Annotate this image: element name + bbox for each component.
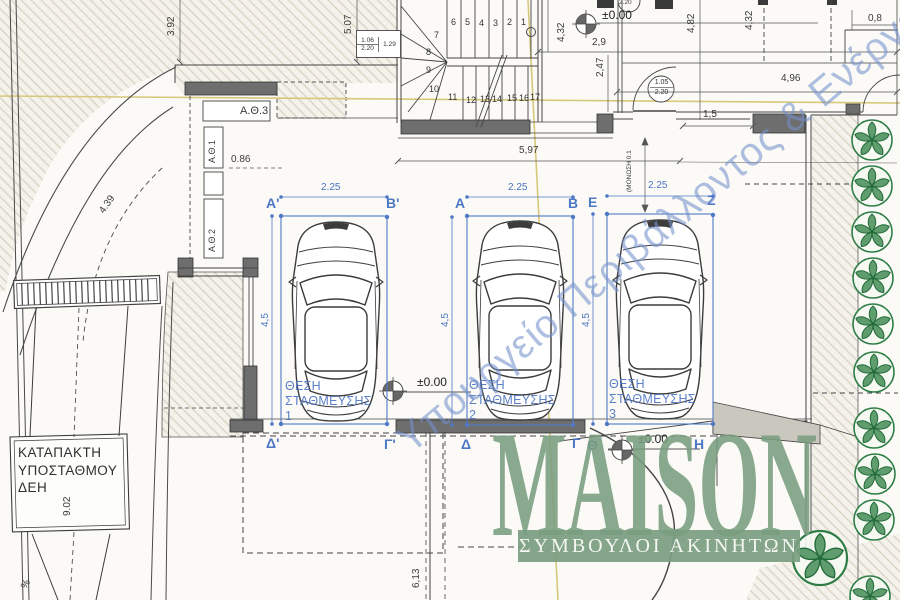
dim-4-82: 4,82 xyxy=(687,14,697,33)
dim-0-86: 0.86 xyxy=(231,155,250,165)
door-tag-main-side: 1.29 xyxy=(379,41,400,48)
door-tag-circle-top: 1.05 xyxy=(650,78,673,88)
dim-3-92: 3.92 xyxy=(167,17,177,36)
door-tag-clipped: 2.20 xyxy=(619,0,632,7)
corner-d2: Δ xyxy=(461,437,471,451)
door-tag-circle-bottom: 2.20 xyxy=(650,88,673,97)
corner-b1: Β' xyxy=(386,196,399,210)
dim-4-32-stair: 4,32 xyxy=(557,23,567,42)
corner-g1: Γ' xyxy=(384,437,396,451)
stair-step-9: 9 xyxy=(426,66,431,75)
deh-shaft-line2: ΥΠΟΣΤΑΘΜΟΥ xyxy=(18,462,117,480)
dim-1-5: 1,5 xyxy=(703,110,717,120)
stair-step-1: 1 xyxy=(521,18,526,27)
door-tag-circle: 1.05 2.20 xyxy=(650,78,673,97)
grating-strip xyxy=(14,275,161,308)
dim-2-47: 2,47 xyxy=(596,58,606,77)
parking-label-1-line1: ΘΕΣΗ xyxy=(285,379,372,394)
stair-step-13: 13 xyxy=(480,95,490,104)
dim-6-13: 6,13 xyxy=(412,569,422,588)
stair-step-6: 6 xyxy=(451,18,456,27)
dim-stall-width-1: 2.25 xyxy=(321,183,340,193)
stair-step-16: 16 xyxy=(519,94,529,103)
stair-step-4: 4 xyxy=(479,19,484,28)
door-tag-main-bottom: 2.20 xyxy=(357,45,378,52)
dim-2-9: 2,9 xyxy=(592,38,606,48)
parking-label-1-line2: ΣΤΑΘΜΕΥΣΗΣ xyxy=(285,394,372,409)
stair-step-7: 7 xyxy=(434,31,439,40)
deh-shaft-label: ΚΑΤΑΠΑΚΤΗ ΥΠΟΣΤΑΘΜΟΥ ΔΕΗ xyxy=(18,444,117,497)
door-tag-main: 1.062.20 1.29 xyxy=(356,30,401,58)
stair-step-2: 2 xyxy=(507,18,512,27)
parking-label-1: ΘΕΣΗ ΣΤΑΘΜΕΥΣΗΣ 1 xyxy=(285,379,372,423)
room-ath1: Α.Θ.1 xyxy=(208,140,217,163)
room-ath2: Α.Θ.2 xyxy=(208,229,217,252)
parking-label-3-line1: ΘΕΣΗ xyxy=(609,377,696,392)
stair-step-8: 8 xyxy=(426,48,431,57)
dim-5-97: 5,97 xyxy=(519,146,538,156)
maison-tagline: ΣΥΜΒΟΥΛΟΙ ΑΚΙΝΗΤΩΝ xyxy=(518,530,800,562)
stair-step-12: 12 xyxy=(466,96,476,105)
door-tag-main-top: 1.06 xyxy=(357,37,378,45)
dim-4-96: 4,96 xyxy=(781,74,800,84)
dim-5-07: 5.07 xyxy=(344,15,354,34)
dim-stall-width-3: 2.25 xyxy=(648,181,667,191)
corner-b2: Β xyxy=(568,196,578,210)
parking-label-1-number: 1 xyxy=(285,409,372,424)
stair-step-3: 3 xyxy=(493,19,498,28)
stair-step-5: 5 xyxy=(465,18,470,27)
corner-e3: Ε xyxy=(588,195,597,209)
corner-a1: Α' xyxy=(266,196,279,210)
dim-9-02: 9.02 xyxy=(63,497,73,516)
dim-insulation: (ΜΟΝΩΣΗ 0.1 xyxy=(627,150,634,192)
deh-shaft-line1: ΚΑΤΑΠΑΚΤΗ xyxy=(18,444,117,462)
stair-step-17: 17 xyxy=(530,93,540,102)
dim-stall-depth-2: 4,5 xyxy=(441,313,451,327)
dim-stall-width-2: 2.25 xyxy=(508,183,527,193)
level-top: ±0.00 xyxy=(602,9,632,21)
dim-stall-depth-1: 4,5 xyxy=(261,313,271,327)
room-ath3: Α.Θ.3 xyxy=(240,106,268,117)
dim-4-32-right: 4,32 xyxy=(745,11,755,30)
deh-shaft-line3: ΔΕΗ xyxy=(18,479,117,497)
corner-a2: Α xyxy=(455,196,465,210)
stair-step-14: 14 xyxy=(492,95,502,104)
stair-step-15: 15 xyxy=(507,94,517,103)
stair-step-11: 11 xyxy=(448,93,457,102)
corner-d1: Δ' xyxy=(266,436,279,450)
stair-step-10: 10 xyxy=(429,85,439,94)
floorplan-page: 3.92 5.07 4,32 2,9 2,47 4,82 4,32 0,8 4,… xyxy=(0,0,900,600)
